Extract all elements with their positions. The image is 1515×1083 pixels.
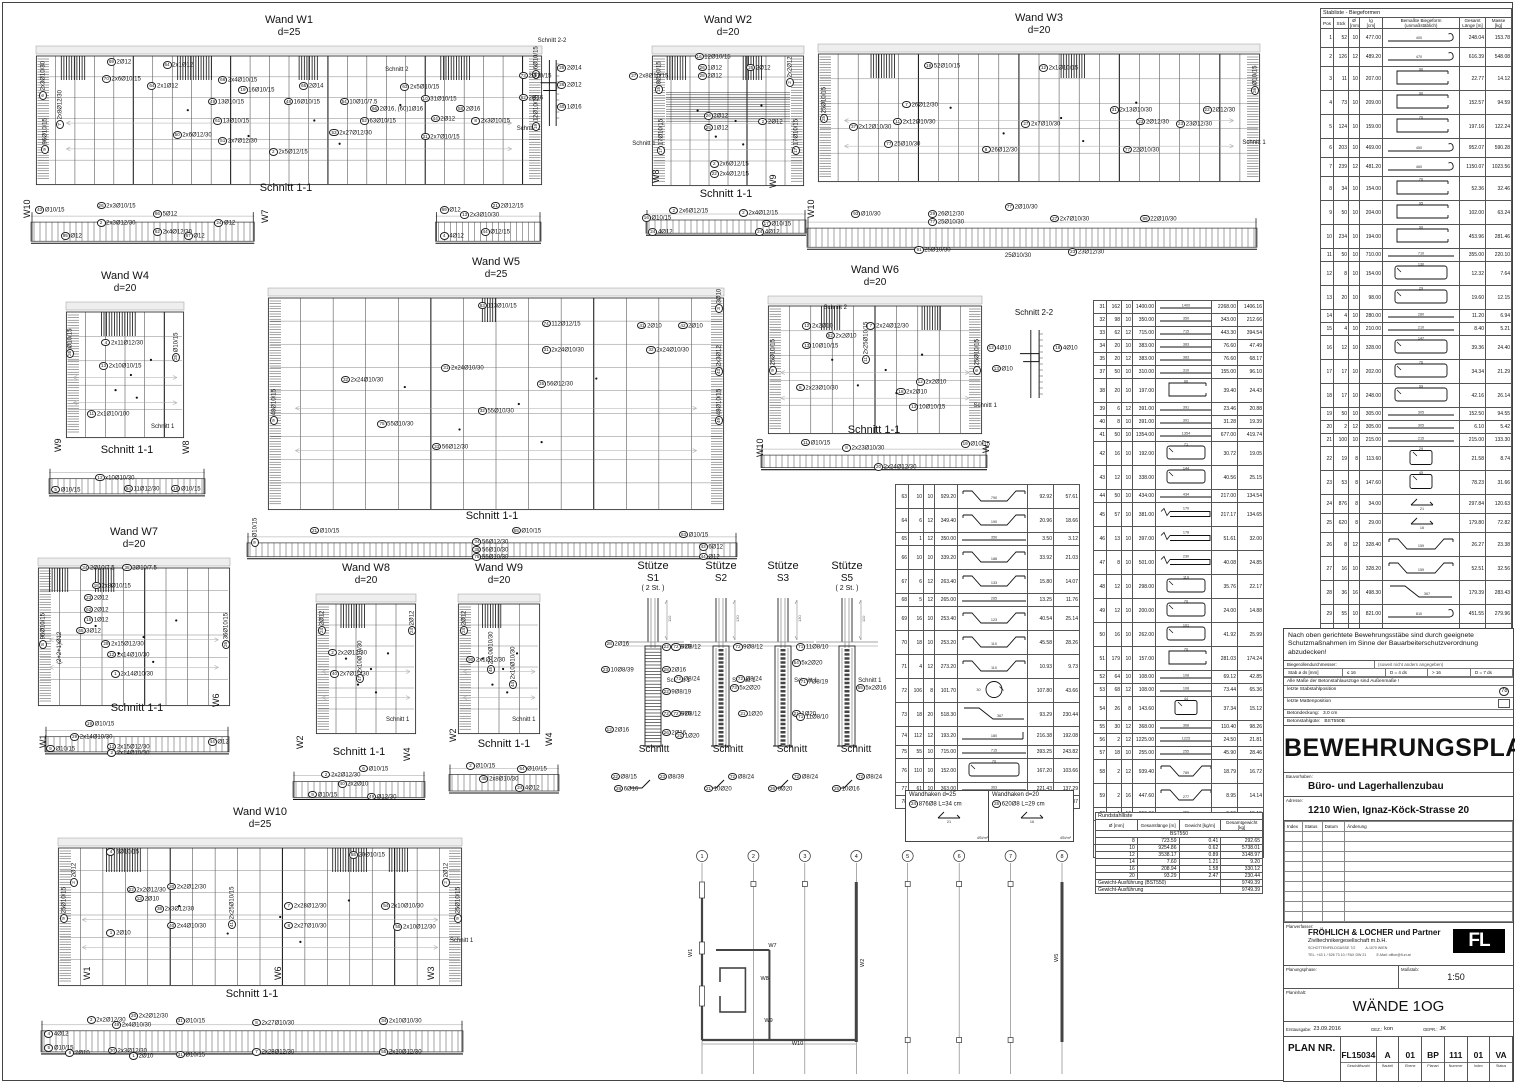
bend-shape: 99 <box>1383 384 1460 408</box>
bar-cell: 10 <box>1122 527 1133 551</box>
bar-cell: 210.00 <box>1360 323 1383 336</box>
d-range: > 16 <box>1428 669 1471 677</box>
bar-row: 115010710.00710355.00220.10 <box>1321 249 1512 262</box>
erstausgabe-value: 23.09.2016 <box>1313 1026 1341 1032</box>
bar-cell: 350.00 <box>935 533 958 546</box>
rebar-annotation: 5520Ø10/15 <box>349 851 385 859</box>
bar-cell: 710.00 <box>1360 249 1383 262</box>
bend-shape: 70 <box>1156 599 1212 623</box>
rebar-annotation: 25Ø10/30 <box>1005 253 1031 259</box>
bend-shape: 391 <box>1156 403 1212 416</box>
rebar-annotation: 242Ø12 <box>408 610 416 634</box>
bend-shape: 123 <box>958 607 1028 631</box>
revision-cell <box>1345 852 1513 862</box>
bar-cell: 16 <box>1107 623 1122 647</box>
bar-cell: 68 <box>896 594 909 607</box>
bar-row: 481210298.0011935.7622.17 <box>1094 575 1264 599</box>
bar-cell: 1406.16 <box>1238 301 1264 314</box>
wall-section-marker: W1 <box>38 735 48 749</box>
bar-cell: 8 <box>1321 177 1334 201</box>
bar-cell: 6 <box>909 509 924 533</box>
revision-row <box>1285 872 1513 882</box>
bar-cell: 469.00 <box>1360 139 1383 158</box>
bar-cell: 11 <box>1334 67 1349 91</box>
rebar-annotation: 2Ø10/15 <box>466 762 495 770</box>
bar-cell: 31.66 <box>1486 471 1512 495</box>
svg-text:108: 108 <box>1183 674 1189 678</box>
rebar-annotation: 452x8Ø10/30 <box>479 775 518 783</box>
bar-cell: 53 <box>1094 684 1107 697</box>
bar-cell: 92.92 <box>1028 485 1054 509</box>
revision-cell <box>1302 832 1322 842</box>
rebar-annotation: 401Ø16 <box>557 103 581 111</box>
bend-shape: 190 <box>958 509 1028 533</box>
keyplan-wall-label: W1 <box>688 949 694 957</box>
bar-row: 731820518.3036793.29230.44 <box>896 703 1080 727</box>
rebar-annotation: 82x27Ø10/30 <box>252 1019 294 1027</box>
rebar-annotation: (2+2+1)Ø12 <box>57 632 63 664</box>
stuetze-s1-title: StützeS1( 2 St. ) <box>622 560 684 594</box>
plannr-value: 111 <box>1445 1050 1467 1060</box>
bar-cell: 192.00 <box>1133 442 1156 466</box>
bar-cell: 10 <box>1122 429 1133 442</box>
svg-text:29: 29 <box>1419 286 1423 290</box>
revision-cell <box>1345 832 1513 842</box>
bar-cell: 112 <box>909 727 924 746</box>
bar-cell: 12 <box>1107 575 1122 599</box>
bar-cell: 73 <box>1334 91 1349 115</box>
svg-text:123: 123 <box>991 618 997 622</box>
rst-row: 16208.941.58330.12 <box>1096 866 1263 873</box>
bar-row: 271610328.2015952.5132.56 <box>1321 557 1512 581</box>
bend-shape: 119 <box>1156 575 1212 599</box>
bar-cell: 3 <box>1321 67 1334 91</box>
bar-cell: 34.00 <box>1360 495 1383 514</box>
bar-cell: 57 <box>1094 747 1107 760</box>
bar-cell: 113.60 <box>1360 447 1383 471</box>
bar-cell: 4 <box>1334 310 1349 323</box>
rebar-annotation: 948Ø10/15 <box>270 389 278 425</box>
bar-cell: 10 <box>1122 301 1133 314</box>
bar-row: 20212305.003056.105.42 <box>1321 421 1512 434</box>
rebar-annotation: 25Ø10/15 <box>172 333 180 362</box>
rst-grade: BST550 <box>1096 831 1263 838</box>
wall-section-marker: W8 <box>651 169 661 183</box>
rebar-annotation: 2636Ø10/15 <box>222 613 230 649</box>
wall-section-marker: W10 <box>22 200 32 219</box>
svg-text:70: 70 <box>1419 177 1423 181</box>
bar-cell: 262.00 <box>1133 623 1156 647</box>
bar-cell: 133.30 <box>1486 434 1512 447</box>
plannr-cells: FL15034GeschäftszahlABauteil01EbeneBPPla… <box>1341 1037 1513 1081</box>
rebar-annotation: 3356Ø12/30 <box>432 443 468 451</box>
bar-cell: 21.29 <box>1486 360 1512 384</box>
bar-cell: 153.78 <box>1486 29 1512 48</box>
rebar-annotation: 12x14Ø10/30 <box>111 670 153 678</box>
bar-cell: 1150.07 <box>1460 158 1486 177</box>
rebar-annotation: 582Ø16 <box>456 105 480 113</box>
keyplan-wall-label: W5 <box>1054 954 1060 962</box>
bar-cell: 93.29 <box>1028 703 1054 727</box>
svg-text:147: 147 <box>1418 336 1424 340</box>
rebar-annotation: 19Ø10/15 <box>85 720 114 728</box>
rebar-annotation: 7111Ø8/10 <box>796 713 828 721</box>
bar-cell: 26.27 <box>1460 533 1486 557</box>
rebar-annotation: 82x27Ø10/30 <box>284 922 326 930</box>
rebar-annotation: 552x10Ø12/30 <box>379 1048 421 1056</box>
bend-shape: 130 <box>1383 262 1460 286</box>
svg-text:45: 45 <box>1419 471 1423 475</box>
bar-cell: 154.00 <box>1360 177 1383 201</box>
svg-text:130: 130 <box>735 615 740 622</box>
bar-row: 22198113.602921.588.74 <box>1321 447 1512 471</box>
bar-cell: 12 <box>1122 684 1133 697</box>
bar-cell: 22.17 <box>1238 575 1264 599</box>
bar-cell: 297.84 <box>1460 495 1486 514</box>
rebar-annotation: 729Ø8/12 <box>671 643 700 651</box>
rebar-annotation: 232Ø12 <box>84 594 108 602</box>
rebar-annotation: 184Ø10 <box>1053 344 1077 352</box>
bar-cell: 5 <box>1321 115 1334 139</box>
svg-text:110: 110 <box>667 615 672 622</box>
svg-text:363: 363 <box>991 786 997 790</box>
rebar-annotation: 925Ø10/15 <box>454 887 462 923</box>
bar-cell: 63.24 <box>1486 201 1512 225</box>
revision-table: IndexStatusDatumÄnderung <box>1284 821 1513 922</box>
rebar-annotation: 44Ø12 <box>44 1030 68 1038</box>
svg-text:71: 71 <box>1184 442 1188 446</box>
svg-text:383: 383 <box>1183 343 1189 347</box>
revision-cell <box>1322 882 1344 892</box>
wall-section-marker: W9 <box>768 174 778 188</box>
bar-cell: 76.60 <box>1212 340 1238 353</box>
rst-row: 147.601.219.20 <box>1096 859 1263 866</box>
bar-cell: 32.46 <box>1486 177 1512 201</box>
bend-shape: 434 <box>1156 490 1212 503</box>
wand-w3-title: Wand W3d=20 <box>818 12 1260 37</box>
rebar-annotation: 322x24Ø10/30 <box>646 346 688 354</box>
rst-cell: 9.20 <box>1221 859 1263 866</box>
schnitt-w5-title: Schnitt 1-1 <box>246 510 738 523</box>
bar-cell: 419.74 <box>1238 429 1264 442</box>
bar-cell: 159.00 <box>1360 115 1383 139</box>
bend-shape: 715 <box>958 746 1028 759</box>
bend-shape: 188 <box>958 546 1028 570</box>
bar-cell: 8.40 <box>1460 323 1486 336</box>
rebar-annotation: 1952Ø10/15 <box>924 62 960 70</box>
bar-cell: 10 <box>1122 442 1133 466</box>
rebar-annotation: 412Ø10 <box>637 322 661 330</box>
schnitt-w8: Schnitt 1-122x2Ø12/30402x2Ø106Ø10/159Ø10… <box>292 760 426 808</box>
rebar-annotation: 3556Ø12/30 <box>537 380 573 388</box>
rst-cell: 10 <box>1096 845 1138 852</box>
revision-cell <box>1285 882 1303 892</box>
revision-cell <box>1322 892 1344 902</box>
bar-cell: 11.20 <box>1460 310 1486 323</box>
svg-text:44: 44 <box>1184 697 1188 701</box>
wand-w7-linework <box>38 556 230 706</box>
bend-shape: 110 <box>958 655 1028 679</box>
bar-cell: 12 <box>1122 403 1133 416</box>
bar-cell: 38 <box>1094 379 1107 403</box>
company-mail: E-Mail: office@fl-zt.at <box>1376 953 1410 958</box>
bar-cell: 10 <box>1122 599 1133 623</box>
bar-cell: 179.39 <box>1460 581 1486 605</box>
rebar-annotation: 492x4Ø10/30 <box>112 1021 151 1029</box>
revision-cell <box>1302 902 1322 912</box>
rebar-annotation: 251Ø12 <box>704 124 728 132</box>
rebar-annotation: 242Ø12 <box>318 610 326 634</box>
bar-cell: 194.00 <box>1360 225 1383 249</box>
rst-row: 2093.292.47230.44 <box>1096 873 1263 880</box>
bar-cell: 197.00 <box>1133 379 1156 403</box>
rebar-annotation: 22x6Ø12/15 <box>710 160 749 168</box>
bar-cell: 489.20 <box>1360 48 1383 67</box>
bar-row: 58212939.4078918.7916.72 <box>1094 760 1264 784</box>
rebar-annotation: 726Ø12/30 <box>902 101 938 109</box>
bar-cell: 4 <box>1334 323 1349 336</box>
rebar-annotation: 352Ø10/7.5 <box>122 564 156 572</box>
rst-cell: 93.29 <box>1137 873 1179 880</box>
schnitt-w10-linework <box>40 1002 464 1066</box>
schnitt-w4: Schnitt 1-15Ø10/1512x10Ø10/309411Ø12/301… <box>48 458 206 504</box>
bar-cell: 10 <box>1122 466 1133 490</box>
svg-text:101: 101 <box>1183 623 1189 627</box>
bar-cell: 10 <box>924 746 935 759</box>
bar-cell: 192.08 <box>1054 727 1080 746</box>
rebar-annotation: 282Ø16 <box>662 666 686 674</box>
plannr-sublabel: Planart <box>1422 1062 1444 1068</box>
bieger-note: (soweit nicht anders angegeben) <box>1375 661 1513 668</box>
revision-cell <box>1285 842 1303 852</box>
bar-row: 295510821.00810451.55279.96 <box>1321 605 1512 624</box>
bar-cell: 122.24 <box>1486 115 1512 139</box>
rebar-annotation: 22Ø12 <box>442 863 450 887</box>
bar-cell: 28.46 <box>1238 747 1264 760</box>
bar-cell: 10 <box>1122 623 1133 647</box>
rebar-annotation: 1310Ø10/15 <box>802 342 838 350</box>
bar-cell: 147.60 <box>1360 471 1383 495</box>
rebar-annotation: 202x2Ø12/30 <box>167 883 206 891</box>
rebar-annotation: 82x3Ø10/15 <box>471 117 510 125</box>
wand-w3: Wand W3d=201952Ø10/15122x1Ø10/15726Ø12/3… <box>818 42 1260 182</box>
wand-w5-title: Wand W5d=25 <box>268 256 724 281</box>
svg-text:188: 188 <box>991 557 997 561</box>
rst-cell: 0.41 <box>1179 838 1221 845</box>
bar-cell: 397.00 <box>1133 527 1156 551</box>
letzte-stab-row: letzte Stabstahlposition 78 <box>1284 685 1513 697</box>
bend-shape: 1225 <box>1156 734 1212 747</box>
bar-cell: 21.03 <box>1054 546 1080 570</box>
bar-cell: 350.00 <box>1133 314 1156 327</box>
bar-cell: 14.07 <box>1054 570 1080 594</box>
rebar-annotation: 342x10Ø10/30 <box>379 1017 421 1025</box>
bar-cell: 17 <box>1321 360 1334 384</box>
revision-cell <box>1285 912 1303 922</box>
plannr-cell: BPPlanart <box>1422 1037 1445 1081</box>
rebar-annotation: 122Ø16 <box>605 726 629 734</box>
bar-cell: 2 <box>1334 421 1349 434</box>
bar-cell: 2268.00 <box>1212 301 1238 314</box>
plannr-value: A <box>1377 1050 1399 1060</box>
svg-text:368: 368 <box>1183 724 1189 728</box>
rebar-annotation: 158Ø10/15 <box>655 61 663 94</box>
bar-cell: 393.25 <box>1028 746 1054 759</box>
rebar-annotation: 24Ø12 <box>214 219 235 227</box>
bar-cell: 57 <box>1107 503 1122 527</box>
bend-shape: 310 <box>1156 366 1212 379</box>
rebar-annotation: 11Ø10/15 <box>801 439 830 447</box>
bar-cell: 18.66 <box>1054 509 1080 533</box>
plannr-value: BP <box>1422 1050 1444 1060</box>
bar-row: 59216447.602778.9514.14 <box>1094 784 1264 808</box>
bar-row: 14410280.0028011.206.94 <box>1321 310 1512 323</box>
rebar-annotation: 9411Ø12/30 <box>124 485 160 493</box>
bar-cell: 16.72 <box>1238 760 1264 784</box>
wand-w10-title: Wand W10d=25 <box>58 806 462 831</box>
bar-cell: 50 <box>1107 366 1122 379</box>
letzte-matte-label: letzte Mattenposition <box>1287 699 1331 708</box>
bend-shape: 21 <box>1383 495 1460 514</box>
bar-cell: 37 <box>1094 366 1107 379</box>
bar-cell: 15 <box>1321 323 1334 336</box>
plannr-cell: 01Index <box>1468 1037 1491 1081</box>
schnitt-w2-title: Schnitt 1-1 <box>645 188 807 201</box>
rebar-annotation: 9125Ø10/30 <box>914 246 950 254</box>
svg-text:710: 710 <box>1418 252 1424 256</box>
revision-table-row: IndexStatusDatumÄnderung <box>1284 821 1513 923</box>
rebar-annotation: 49Ø12/30 <box>367 793 396 801</box>
bar-cell: 305.00 <box>1360 408 1383 421</box>
masse-note-row: Alle Maße der Betonstahlauszüge sind Auß… <box>1284 677 1513 685</box>
rebar-annotation: 282Ø16 <box>605 640 629 648</box>
rebar-annotation: 452x10Ø10/30 <box>487 632 495 674</box>
svg-text:90: 90 <box>1419 67 1423 71</box>
rebar-annotation: 72x28Ø12/30 <box>252 1048 294 1056</box>
revision-cell <box>1285 902 1303 912</box>
rebar-annotation: 262Ø12 <box>557 81 581 89</box>
bar-cell: 120.63 <box>1486 495 1512 514</box>
bar-cell: 18.79 <box>1212 760 1238 784</box>
bar-cell: 45.90 <box>1212 747 1238 760</box>
bar-row: 181710248.009942.1626.14 <box>1321 384 1512 408</box>
wandhaken-box: Wandhaken d=25 24876Ø8 L=34 cm 21 4St/m² <box>905 790 991 842</box>
bar-cell: 12 <box>1122 721 1133 734</box>
keyplan-wall-label: W2 <box>860 958 866 966</box>
svg-text:400: 400 <box>1416 36 1422 40</box>
rst-cell: 330.12 <box>1221 866 1263 873</box>
bar-cell: 6.10 <box>1460 421 1486 434</box>
bend-shape: 368 <box>1156 721 1212 734</box>
bar-cell: 10 <box>924 485 935 509</box>
letzte-stab-pos: 78 <box>1499 687 1509 696</box>
bar-cell: 39 <box>1094 403 1107 416</box>
bar-cell: 162 <box>1107 301 1122 314</box>
bar-cell: 10 <box>1122 647 1133 671</box>
bar-row: 71412273.2011010.939.73 <box>896 655 1080 679</box>
plannr-cell: FL15034Geschäftszahl <box>1341 1037 1377 1081</box>
bar-cell: 248.04 <box>1460 29 1486 48</box>
schnitt-2-2-w6-linework <box>1002 320 1066 400</box>
bar-cell: 10 <box>1349 310 1360 323</box>
bar-cell: 498.30 <box>1360 581 1383 605</box>
wall-section-marker: W4 <box>544 733 554 747</box>
rst-cell: 723.59 <box>1137 838 1179 845</box>
bar-cell: 10 <box>1349 286 1360 310</box>
bar-cell: 53 <box>1334 471 1349 495</box>
svg-text:789: 789 <box>1183 771 1189 775</box>
bar-cell: 4 <box>909 655 924 679</box>
rebar-annotation: 312x24Ø10/30 <box>441 364 483 372</box>
bar-cell: 929.20 <box>935 485 958 509</box>
bar-row: 755510715.00715393.25243.82 <box>896 746 1080 759</box>
svg-text:1400: 1400 <box>1182 304 1190 308</box>
bar-cell: 7 <box>1321 158 1334 177</box>
svg-text:90: 90 <box>1419 91 1423 95</box>
rebar-annotation: 732Ø10/15 <box>519 72 552 80</box>
bend-shape: 715 <box>1156 327 1212 340</box>
revision-row <box>1285 842 1513 852</box>
bar-cell: 212.66 <box>1238 314 1264 327</box>
bar-cell: 78.23 <box>1460 471 1486 495</box>
rebar-annotation: 312x13Ø10/30 <box>1110 106 1152 114</box>
planungsphase-label: Planungsphase: <box>1284 966 1398 972</box>
bend-shape: 215 <box>1383 434 1460 447</box>
bar-row: 64612349.4019020.9618.66 <box>896 509 1080 533</box>
bend-shape: 70 <box>1156 647 1212 671</box>
rebar-annotation: 21Ø10/15 <box>310 527 339 535</box>
rebar-annotation: 44Ø12 <box>208 738 229 746</box>
bar-cell: 21.58 <box>1460 447 1486 471</box>
bar-cell: 167.20 <box>1028 759 1054 783</box>
revision-cell <box>1345 902 1513 912</box>
plannr-value: FL15034 <box>1341 1050 1376 1060</box>
bar-cell: 328.20 <box>1360 557 1383 581</box>
svg-text:110: 110 <box>861 615 866 622</box>
bar-cell: 42 <box>1094 442 1107 466</box>
bar-cell: 215.00 <box>1460 434 1486 447</box>
rst-cell: 16 <box>1096 866 1138 873</box>
bar-row: 553012368.00368110.4098.26 <box>1094 721 1264 734</box>
svg-text:70: 70 <box>1184 599 1188 603</box>
rst-cell: 3148.97 <box>1221 852 1263 859</box>
bend-shape: 710 <box>1383 249 1460 262</box>
revision-row <box>1285 912 1513 922</box>
svg-text:180: 180 <box>991 734 997 738</box>
rebar-annotation: 7555Ø10/30 <box>472 553 508 561</box>
rst-footer-label: Gewicht-Ausführung <box>1096 887 1221 894</box>
rebar-annotation: 996Ø10/15 <box>41 118 49 154</box>
bar-cell: 24 <box>1321 495 1334 514</box>
rebar-annotation: 23Ø8/39 <box>658 773 684 781</box>
svg-text:230: 230 <box>1183 555 1189 559</box>
bar-cell: 10 <box>1321 225 1334 249</box>
svg-text:715: 715 <box>1183 330 1189 334</box>
rev-header: Datum <box>1322 822 1344 832</box>
bar-cell: 12 <box>1349 48 1360 67</box>
bar-cell: 15.12 <box>1238 697 1264 721</box>
bar-cell: 217.00 <box>1212 490 1238 503</box>
bar-cell: 10 <box>1122 340 1133 353</box>
bar-cell: 10 <box>1122 671 1133 684</box>
wandhaken-box: Wandhaken d=20 25620Ø8 L=29 cm 16 4St/m² <box>988 790 1074 842</box>
rebar-annotation: Schnitt 1 <box>512 717 535 723</box>
bar-cell: 26.14 <box>1486 384 1512 408</box>
bar-cell: 20.96 <box>1028 509 1054 533</box>
bar-row: 67612263.4013315.8014.07 <box>896 570 1080 594</box>
plannr-label: PLAN NR. <box>1284 1037 1341 1081</box>
bar-row: 161210328.0014739.3624.40 <box>1321 336 1512 360</box>
